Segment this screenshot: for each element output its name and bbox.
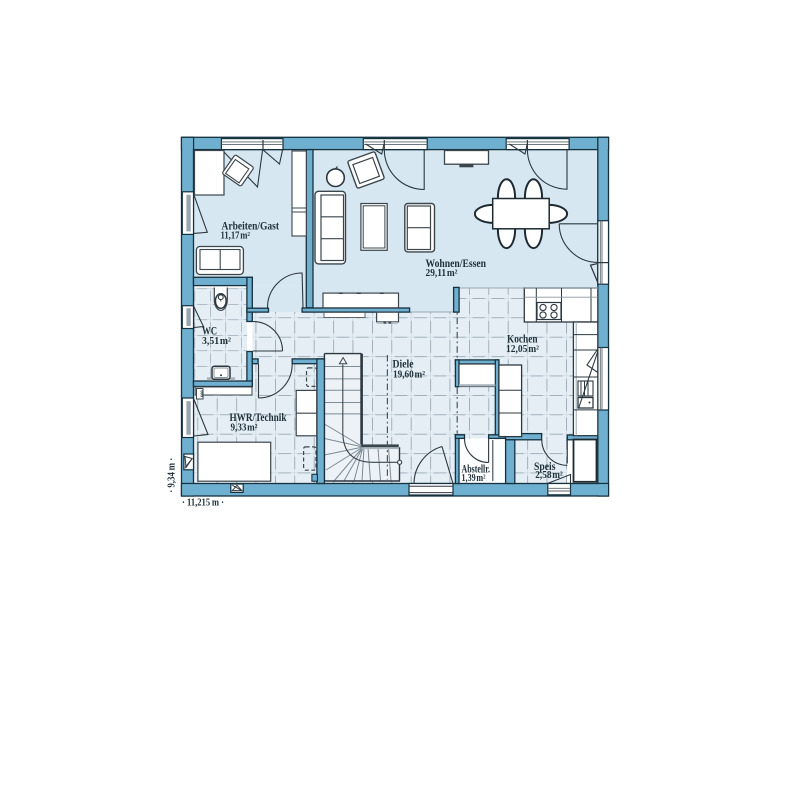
svg-text:11,17 m²: 11,17 m² <box>221 231 251 242</box>
svg-text:2,58 m²: 2,58 m² <box>535 470 563 481</box>
svg-text:1,39 m²: 1,39 m² <box>462 473 486 484</box>
svg-text:29,11 m²: 29,11 m² <box>426 268 458 279</box>
svg-text:3,51 m²: 3,51 m² <box>202 336 231 347</box>
svg-text:9,33 m²: 9,33 m² <box>231 423 258 434</box>
svg-text:600: 600 <box>200 390 205 398</box>
svg-text:· 9,34 m ·: · 9,34 m · <box>167 458 178 493</box>
svg-text:12,05 m²: 12,05 m² <box>506 344 539 355</box>
svg-text:· 11,215 m ·: · 11,215 m · <box>182 498 224 509</box>
svg-text:19,60 m²: 19,60 m² <box>393 369 425 380</box>
